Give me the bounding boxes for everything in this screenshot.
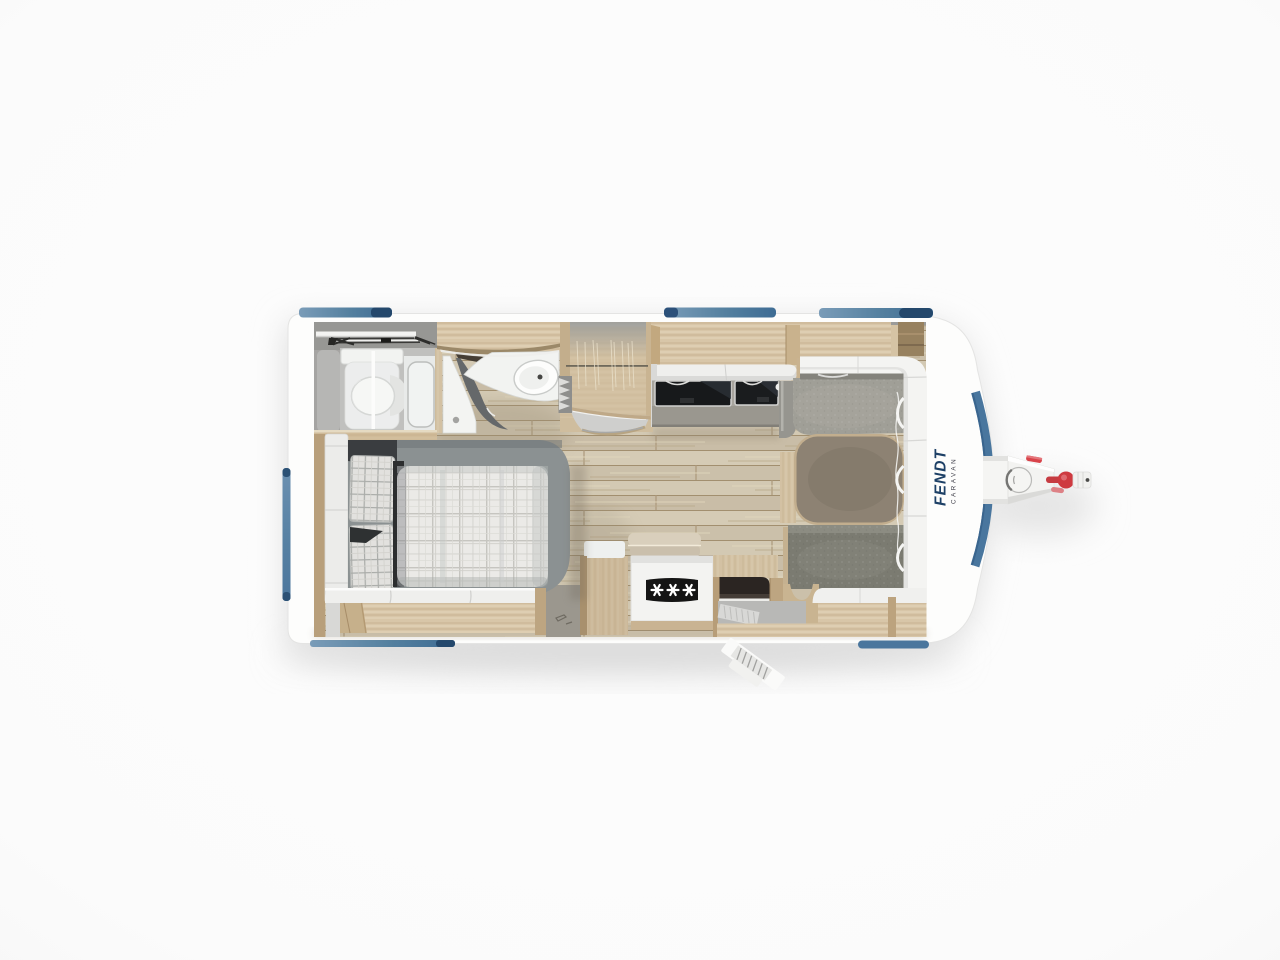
svg-text:CARAVAN: CARAVAN	[951, 457, 958, 504]
svg-text:FENDT: FENDT	[933, 448, 950, 506]
